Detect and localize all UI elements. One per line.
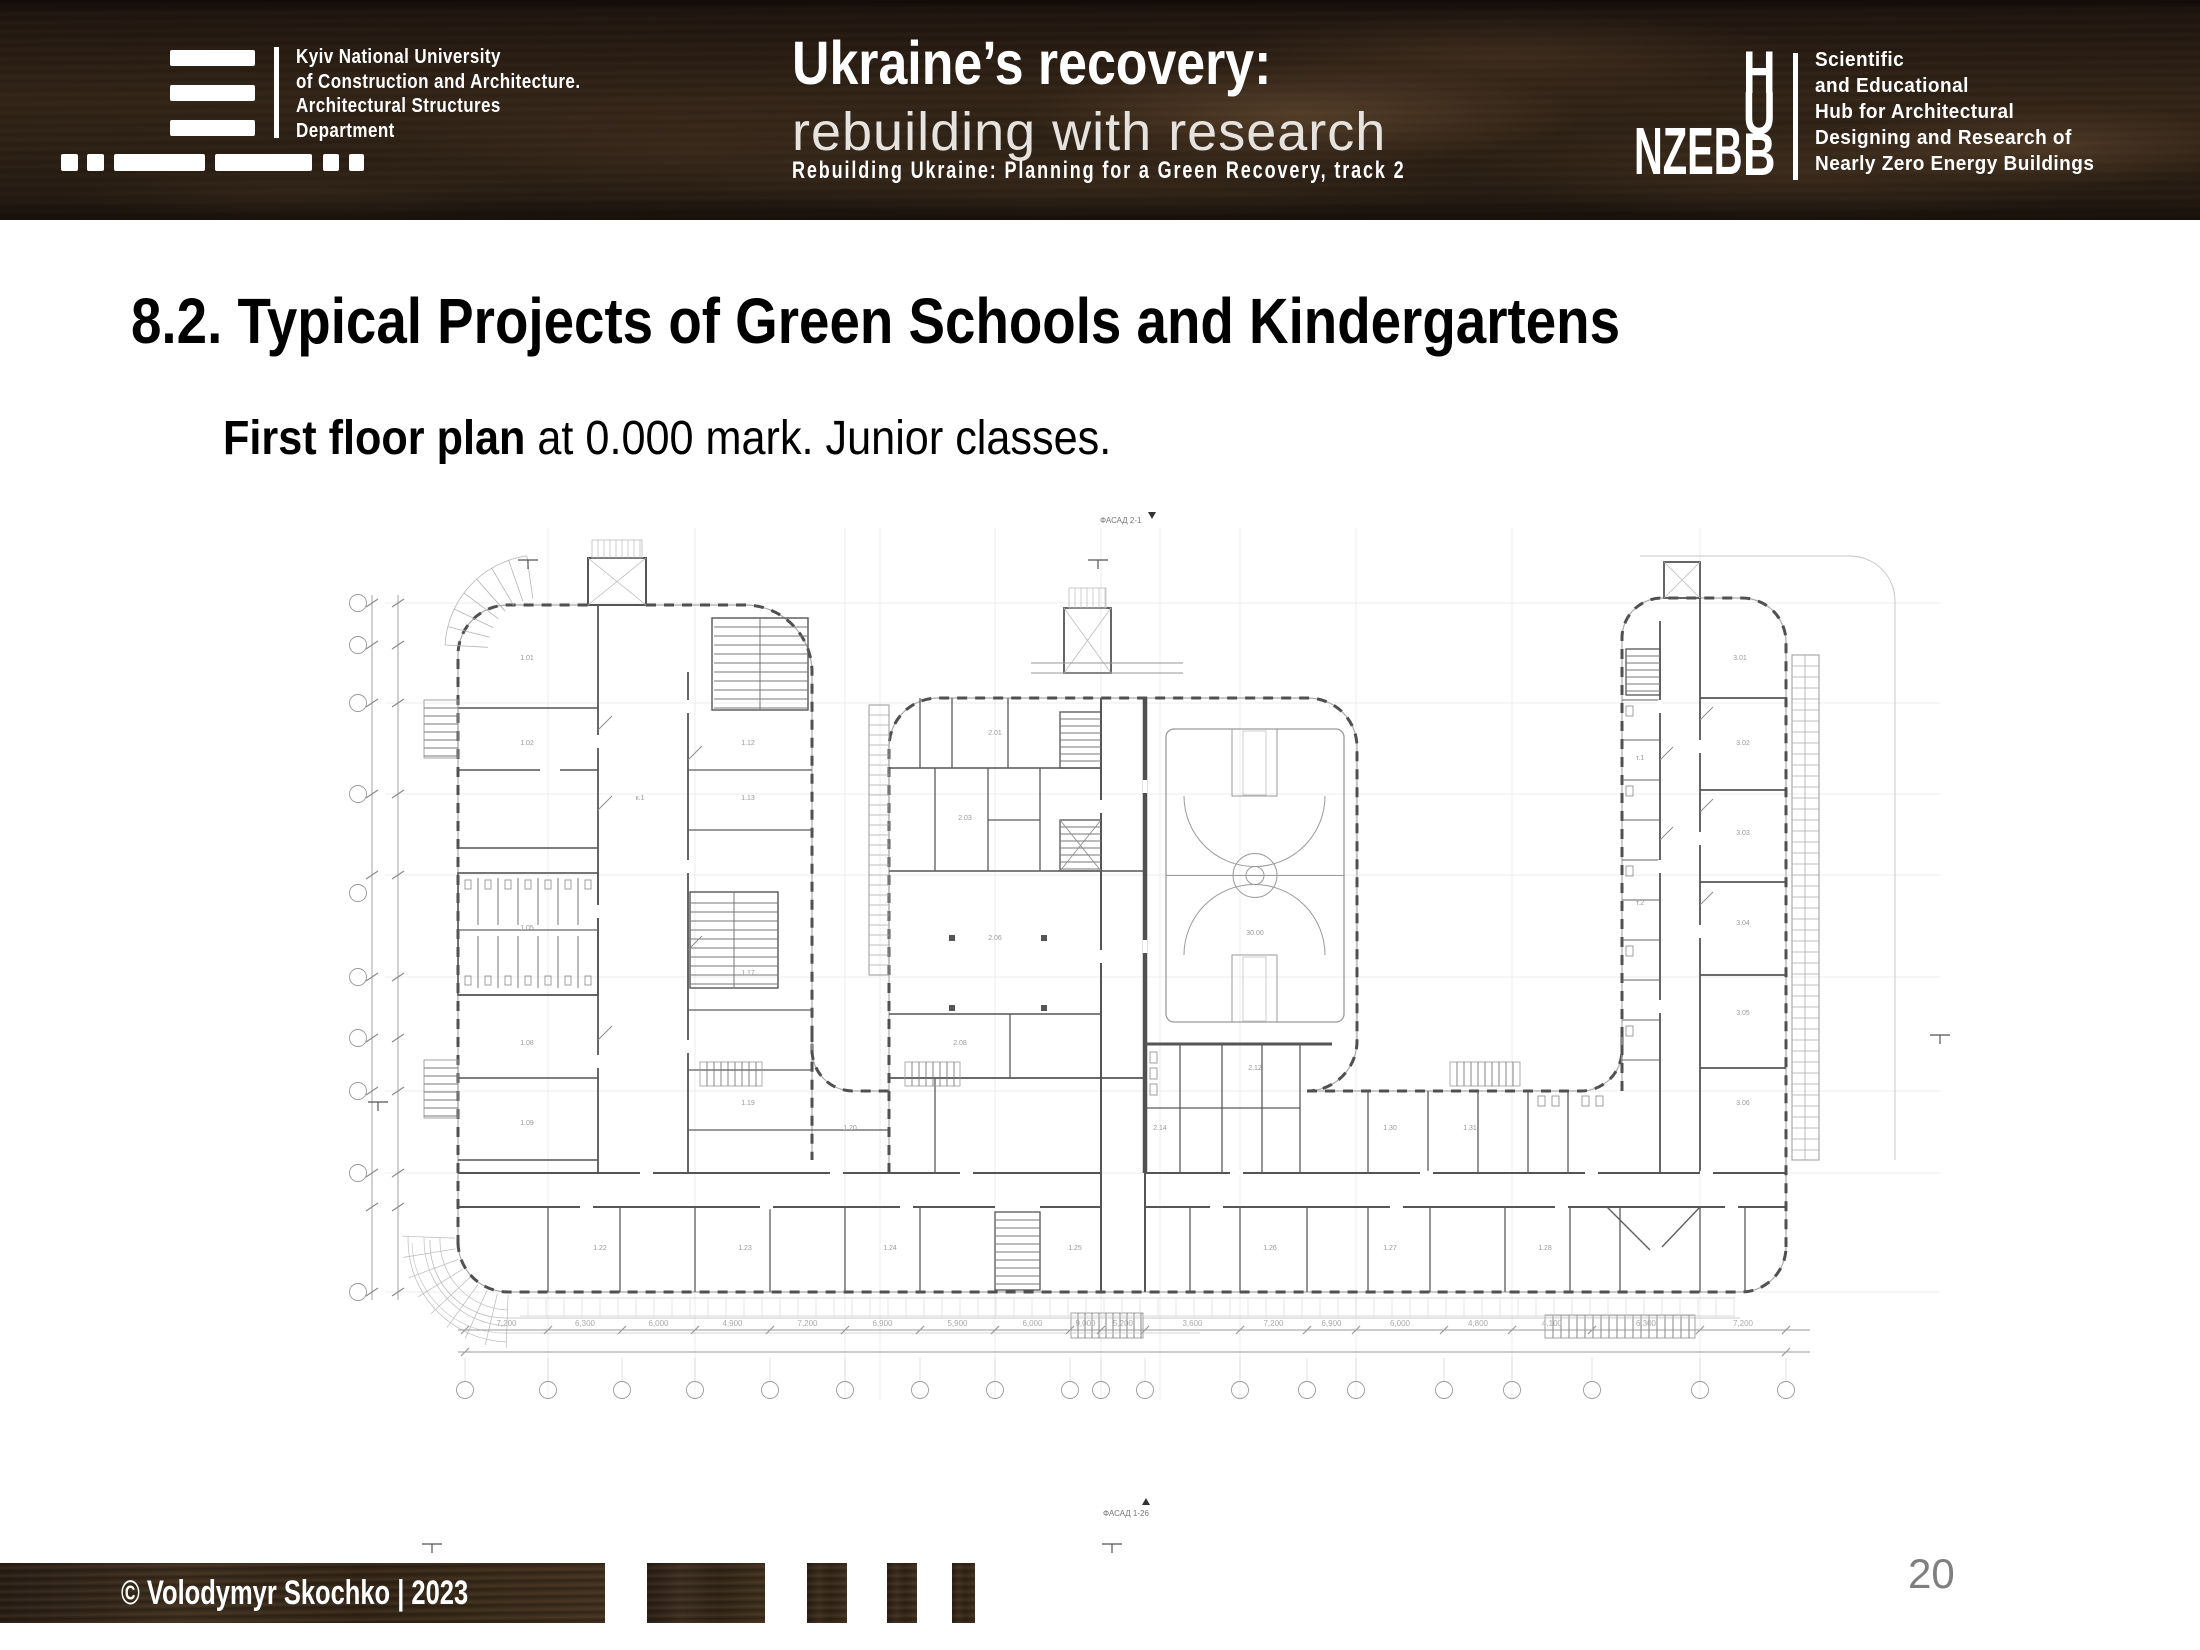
svg-text:1.08: 1.08 [520,1040,534,1047]
svg-text:7,200: 7,200 [1733,1319,1754,1328]
svg-text:1.20: 1.20 [843,1125,857,1132]
svg-text:30.00: 30.00 [1246,930,1264,937]
svg-text:1.02: 1.02 [520,740,534,747]
svg-text:6,300: 6,300 [1636,1319,1657,1328]
svg-text:1.24: 1.24 [883,1245,897,1252]
svg-text:1.01: 1.01 [520,655,534,662]
svg-text:1.30: 1.30 [1383,1125,1397,1132]
svg-text:2.01: 2.01 [988,730,1002,737]
svg-text:2.06: 2.06 [988,935,1002,942]
svg-text:1.28: 1.28 [1538,1245,1552,1252]
svg-text:4,900: 4,900 [722,1319,743,1328]
svg-text:1.19: 1.19 [741,1100,755,1107]
svg-text:6,000: 6,000 [648,1319,669,1328]
svg-text:3,600: 3,600 [1182,1319,1203,1328]
svg-text:7,200: 7,200 [496,1319,517,1328]
svg-text:1.13: 1.13 [741,795,755,802]
svg-text:3.01: 3.01 [1733,655,1747,662]
svg-text:к.1: к.1 [636,795,645,802]
svg-text:7,200: 7,200 [797,1319,818,1328]
svg-text:1.17: 1.17 [741,970,755,977]
svg-text:6,900: 6,900 [1321,1319,1342,1328]
svg-text:5,200: 5,200 [1113,1319,1134,1328]
svg-text:3.03: 3.03 [1736,830,1750,837]
svg-text:6,300: 6,300 [575,1319,596,1328]
svg-text:т.1: т.1 [1636,755,1644,762]
svg-text:1.09: 1.09 [520,1120,534,1127]
svg-text:3.04: 3.04 [1736,920,1750,927]
svg-text:ФАСАД 1-26: ФАСАД 1-26 [1103,1509,1149,1518]
svg-text:1.12: 1.12 [741,740,755,747]
svg-text:1.22: 1.22 [593,1245,607,1252]
svg-text:2.14: 2.14 [1153,1125,1167,1132]
svg-text:4,100: 4,100 [1542,1319,1563,1328]
svg-text:6,000: 6,000 [1390,1319,1411,1328]
svg-text:т.2: т.2 [1636,900,1644,907]
svg-text:1.27: 1.27 [1383,1245,1397,1252]
svg-text:3.02: 3.02 [1736,740,1750,747]
svg-text:1.31: 1.31 [1463,1125,1477,1132]
svg-text:4,800: 4,800 [1468,1319,1489,1328]
svg-text:6,900: 6,900 [872,1319,893,1328]
svg-text:6,000: 6,000 [1022,1319,1043,1328]
svg-text:1.05: 1.05 [520,925,534,932]
svg-text:3.05: 3.05 [1736,1010,1750,1017]
svg-text:1.23: 1.23 [738,1245,752,1252]
svg-text:1.25: 1.25 [1068,1245,1082,1252]
svg-text:ФАСАД 2-1: ФАСАД 2-1 [1100,516,1142,525]
svg-text:3.06: 3.06 [1736,1100,1750,1107]
svg-text:2.03: 2.03 [958,815,972,822]
svg-text:7,200: 7,200 [1263,1319,1284,1328]
svg-text:2.12: 2.12 [1248,1065,1262,1072]
svg-text:2.08: 2.08 [953,1040,967,1047]
svg-text:1.26: 1.26 [1263,1245,1277,1252]
svg-text:5,900: 5,900 [947,1319,968,1328]
svg-text:9,000: 9,000 [1075,1319,1096,1328]
